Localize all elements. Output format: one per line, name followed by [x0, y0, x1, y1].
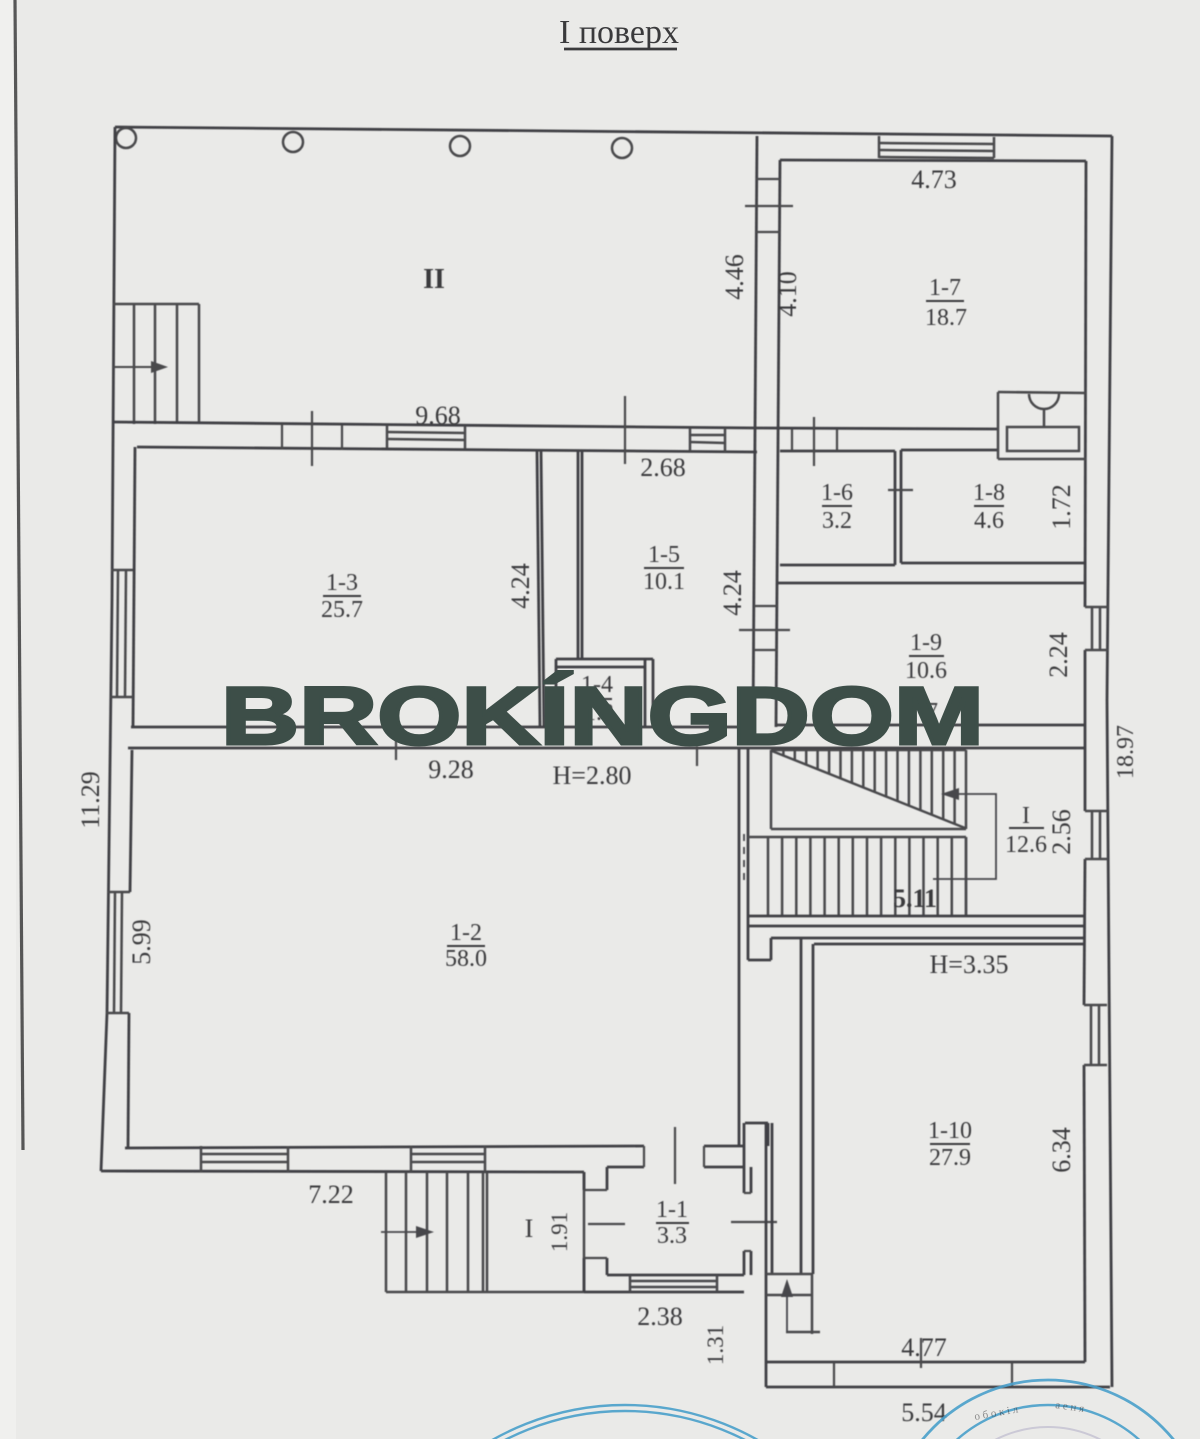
svg-text:ІІ: ІІ	[423, 264, 445, 295]
svg-text:1-2: 1-2	[450, 920, 482, 946]
svg-text:4.46: 4.46	[720, 254, 749, 300]
svg-text:1-7: 1-7	[929, 275, 961, 301]
svg-text:2.24: 2.24	[1044, 632, 1073, 678]
svg-text:H=2.80: H=2.80	[553, 761, 632, 790]
svg-text:5.11: 5.11	[893, 884, 937, 913]
svg-text:І поверх: І поверх	[559, 14, 679, 51]
svg-text:18.97: 18.97	[1113, 725, 1139, 779]
svg-text:12.6: 12.6	[1005, 832, 1047, 858]
svg-text:25.7: 25.7	[321, 597, 363, 623]
svg-text:4.73: 4.73	[911, 165, 957, 194]
svg-text:18.7: 18.7	[925, 305, 967, 331]
svg-text:10.1: 10.1	[643, 569, 685, 595]
svg-text:2.68: 2.68	[640, 453, 686, 482]
svg-text:BROKÍNGDOM: BROKÍNGDOM	[221, 671, 984, 762]
svg-text:1-9: 1-9	[910, 630, 942, 656]
svg-text:І: І	[1022, 803, 1030, 829]
svg-text:H=3.35: H=3.35	[930, 950, 1009, 979]
svg-text:4.10: 4.10	[773, 271, 802, 317]
svg-text:3.2: 3.2	[822, 508, 852, 534]
svg-text:4.6: 4.6	[974, 508, 1004, 534]
svg-text:3.3: 3.3	[657, 1223, 687, 1249]
svg-text:1.31: 1.31	[703, 1325, 728, 1365]
svg-text:2.56: 2.56	[1047, 809, 1076, 855]
svg-text:9.68: 9.68	[415, 401, 461, 430]
svg-text:1-8: 1-8	[973, 480, 1005, 506]
svg-text:11.29: 11.29	[76, 771, 105, 829]
svg-text:1.72: 1.72	[1047, 484, 1076, 530]
svg-text:І: І	[525, 1214, 534, 1243]
svg-text:1-1: 1-1	[656, 1197, 688, 1223]
svg-text:1-3: 1-3	[326, 570, 358, 596]
svg-text:6.34: 6.34	[1047, 1127, 1076, 1173]
svg-text:4.77: 4.77	[901, 1333, 947, 1362]
svg-text:1-5: 1-5	[648, 542, 680, 568]
svg-text:1-6: 1-6	[821, 480, 853, 506]
svg-text:5.99: 5.99	[127, 919, 156, 965]
svg-text:1-10: 1-10	[928, 1118, 972, 1144]
svg-text:58.0: 58.0	[445, 946, 487, 972]
svg-text:27.9: 27.9	[929, 1145, 971, 1171]
svg-text:7.22: 7.22	[308, 1180, 354, 1209]
svg-text:2.38: 2.38	[637, 1302, 683, 1331]
svg-text:4.24: 4.24	[718, 570, 747, 616]
svg-text:4.24: 4.24	[506, 563, 535, 609]
svg-text:1.91: 1.91	[547, 1212, 572, 1252]
